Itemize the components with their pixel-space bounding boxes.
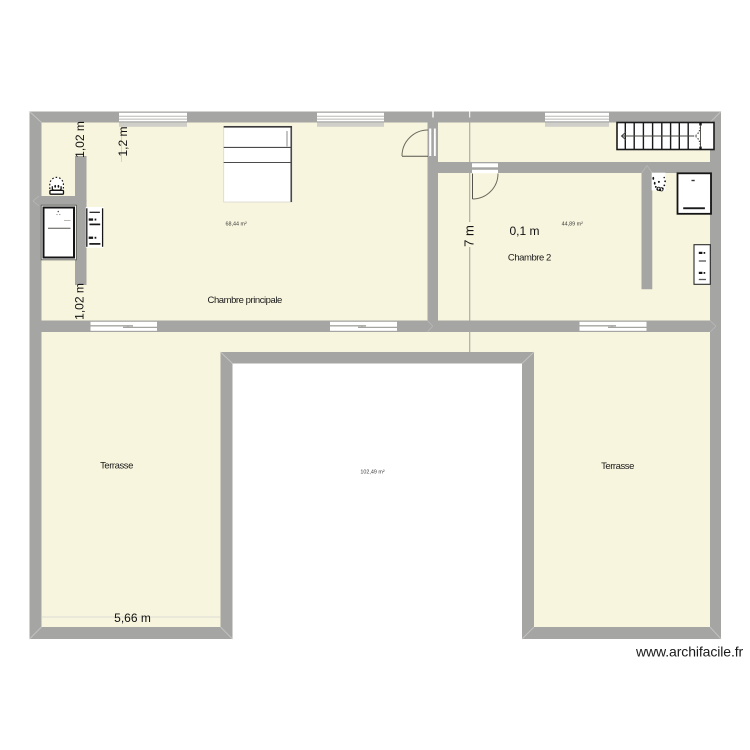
svg-text:102,49 m²: 102,49 m² <box>360 470 384 476</box>
svg-text:Chambre 2: Chambre 2 <box>508 253 551 264</box>
svg-text:Chambre principale: Chambre principale <box>208 295 282 306</box>
svg-text:5,66 m: 5,66 m <box>114 611 151 625</box>
svg-text:1,2 m: 1,2 m <box>116 126 130 156</box>
svg-text:Terrasse: Terrasse <box>601 461 634 472</box>
svg-text:Terrasse: Terrasse <box>100 460 133 471</box>
svg-text:68,44 m²: 68,44 m² <box>226 222 247 228</box>
svg-text:0,1 m: 0,1 m <box>509 224 539 238</box>
svg-text:1,02 m: 1,02 m <box>73 283 87 320</box>
svg-text:44,89 m²: 44,89 m² <box>562 222 583 228</box>
svg-text:1,02 m: 1,02 m <box>73 121 87 158</box>
svg-text:www.archifacile.fr: www.archifacile.fr <box>635 644 744 660</box>
svg-text:7 m: 7 m <box>461 225 476 247</box>
